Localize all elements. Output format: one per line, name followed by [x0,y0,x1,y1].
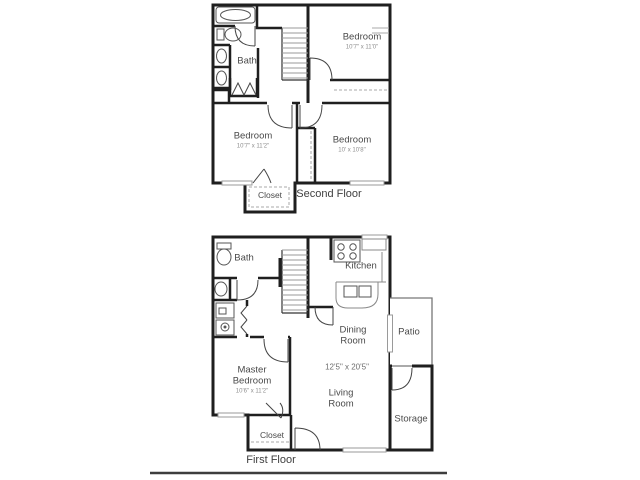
room-label-bedroom-right: Bedroom [333,136,372,147]
room-label-bedroom-top: Bedroom [343,33,382,44]
room-dims-bedroom-left: 10'7" x 11'2" [237,144,269,151]
room-dims-bedroom-right: 10' x 10'8" [338,148,365,155]
room-label-bath-2f: Bath [237,57,257,68]
room-label-dining-room: Dining Room [329,325,377,346]
room-label-bedroom-left: Bedroom [234,132,273,143]
room-label-living-room: Living Room [319,388,363,409]
floor-title-first: First Floor [246,454,296,466]
room-label-storage: Storage [394,415,427,426]
room-label-bath-1f: Bath [234,254,254,265]
room-label-closet-2f: Closet [258,191,282,201]
floorplan-image: Bath Bedroom 10'7" x 11'0" Bedroom 10'7"… [0,0,640,480]
room-label-kitchen: Kitchen [345,262,377,273]
unit-dims: 12'5" x 20'5" [325,364,369,373]
room-label-master-bedroom: Master Bedroom [222,365,282,386]
storage-walls [390,366,432,450]
room-dims-master-bedroom: 10'6" x 11'2" [236,389,268,396]
floor-title-second: Second Floor [296,188,361,200]
room-label-patio: Patio [398,328,420,339]
room-dims-bedroom-top: 10'7" x 11'0" [346,45,378,52]
room-label-closet-1f: Closet [260,431,284,441]
